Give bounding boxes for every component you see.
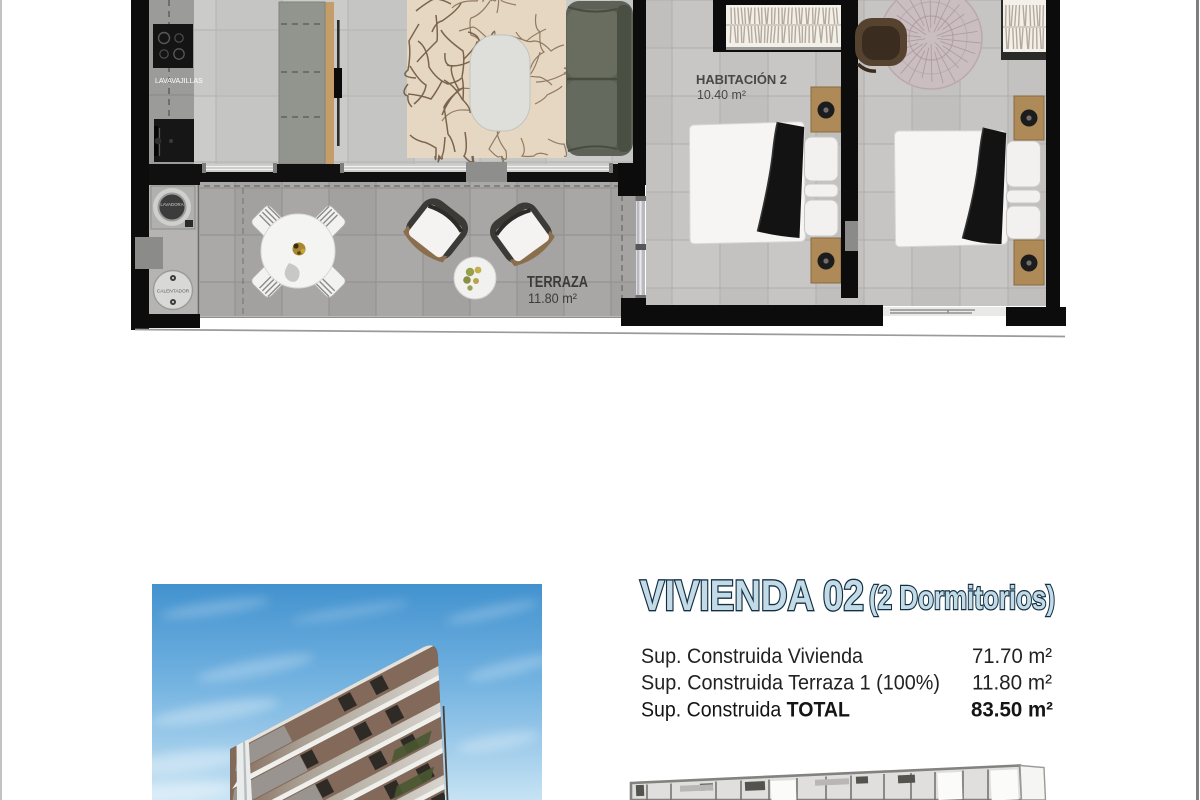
svg-text:71.70 m²: 71.70 m² (972, 645, 1052, 668)
svg-text:10.40 m²: 10.40 m² (697, 87, 747, 102)
svg-text:Sup. Construida Vivienda: Sup. Construida Vivienda (641, 645, 863, 668)
svg-text:83.50 m²: 83.50 m² (971, 699, 1053, 722)
svg-text:11.80 m²: 11.80 m² (528, 291, 577, 306)
svg-text:11.80 m²: 11.80 m² (972, 672, 1052, 695)
svg-text:LAVAVAJILLAS: LAVAVAJILLAS (155, 78, 203, 85)
svg-text:Sup. Construida Terraza 1 (100: Sup. Construida Terraza 1 (100%) (641, 672, 940, 695)
svg-text:VIVIENDA 02: VIVIENDA 02 (640, 572, 864, 620)
svg-text:CALENTADOR: CALENTADOR (157, 289, 190, 295)
svg-text:Sup. Construida TOTAL: Sup. Construida TOTAL (641, 699, 850, 722)
svg-text:TERRAZA: TERRAZA (527, 274, 588, 291)
svg-text:HABITACIÓN 2: HABITACIÓN 2 (696, 72, 787, 87)
svg-text:LAVADORA: LAVADORA (160, 202, 183, 207)
svg-text:(2 Dormitorios): (2 Dormitorios) (869, 579, 1055, 616)
